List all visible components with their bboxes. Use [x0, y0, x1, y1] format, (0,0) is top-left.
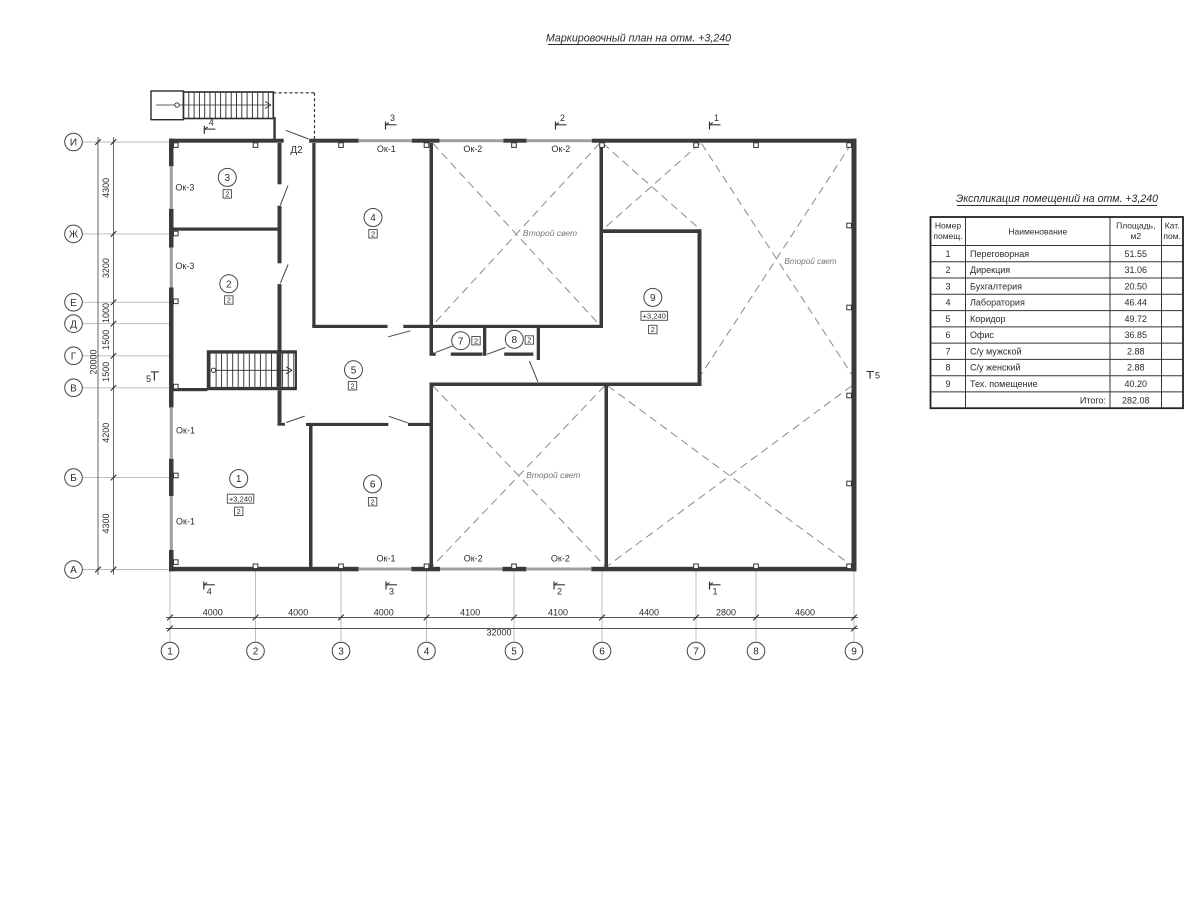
- svg-text:3200: 3200: [101, 258, 111, 278]
- svg-text:6: 6: [370, 480, 376, 491]
- svg-text:Ок-2: Ок-2: [463, 144, 482, 154]
- svg-text:2800: 2800: [716, 608, 736, 618]
- svg-text:1500: 1500: [101, 330, 111, 350]
- svg-text:2: 2: [945, 265, 950, 275]
- svg-text:8: 8: [753, 647, 759, 658]
- svg-text:Бухгалтерия: Бухгалтерия: [970, 281, 1022, 291]
- svg-text:2.88: 2.88: [1127, 347, 1145, 357]
- svg-text:20.50: 20.50: [1125, 281, 1148, 291]
- svg-text:Второй свет: Второй свет: [523, 228, 577, 238]
- svg-text:2: 2: [226, 279, 232, 290]
- svg-text:4100: 4100: [548, 608, 568, 618]
- svg-text:Б: Б: [70, 473, 77, 484]
- svg-text:Второй свет: Второй свет: [526, 470, 580, 480]
- svg-text:+3,240: +3,240: [642, 312, 665, 321]
- svg-text:1500: 1500: [101, 362, 111, 382]
- svg-text:5: 5: [351, 365, 357, 376]
- svg-text:2: 2: [651, 325, 655, 334]
- svg-text:1: 1: [714, 113, 719, 123]
- svg-text:7: 7: [458, 336, 464, 347]
- svg-text:6: 6: [945, 330, 950, 340]
- svg-text:Ок-2: Ок-2: [551, 553, 570, 563]
- svg-text:2: 2: [350, 382, 354, 391]
- svg-text:помещ.: помещ.: [933, 231, 962, 241]
- svg-text:А: А: [70, 565, 77, 576]
- svg-text:2.88: 2.88: [1127, 363, 1145, 373]
- svg-text:Офис: Офис: [970, 330, 994, 340]
- svg-text:9: 9: [851, 647, 857, 658]
- svg-text:5: 5: [511, 647, 517, 658]
- svg-text:Е: Е: [70, 298, 77, 309]
- svg-text:Переговорная: Переговорная: [970, 249, 1029, 259]
- svg-text:3: 3: [390, 113, 395, 123]
- svg-text:Ок-2: Ок-2: [551, 144, 570, 154]
- svg-text:Кат.: Кат.: [1165, 221, 1180, 231]
- svg-text:9: 9: [650, 293, 656, 304]
- svg-text:Площадь,: Площадь,: [1116, 221, 1155, 231]
- svg-text:Д: Д: [70, 319, 77, 330]
- svg-text:Номер: Номер: [935, 221, 961, 231]
- svg-text:4300: 4300: [101, 513, 111, 533]
- svg-text:4200: 4200: [101, 423, 111, 443]
- svg-text:282.08: 282.08: [1122, 395, 1150, 405]
- svg-text:4400: 4400: [639, 608, 659, 618]
- svg-text:2: 2: [474, 336, 478, 345]
- svg-text:Ок-3: Ок-3: [175, 183, 194, 193]
- svg-text:8: 8: [945, 363, 950, 373]
- svg-text:Ок-1: Ок-1: [377, 144, 396, 154]
- svg-text:В: В: [70, 383, 77, 394]
- svg-text:36.85: 36.85: [1125, 330, 1148, 340]
- svg-text:3: 3: [225, 173, 231, 184]
- svg-text:Итого:: Итого:: [1080, 395, 1106, 405]
- svg-text:4: 4: [945, 298, 950, 308]
- svg-text:Ок-2: Ок-2: [464, 553, 483, 563]
- svg-text:7: 7: [693, 647, 699, 658]
- svg-text:Маркировочный план на отм. +3,: Маркировочный план на отм. +3,240: [546, 33, 731, 45]
- svg-text:Ок-3: Ок-3: [175, 261, 194, 271]
- svg-text:2: 2: [227, 296, 231, 305]
- svg-text:Д2: Д2: [290, 145, 303, 156]
- svg-text:Тех. помещение: Тех. помещение: [970, 379, 1038, 389]
- svg-text:С/у мужской: С/у мужской: [970, 347, 1021, 357]
- svg-text:7: 7: [945, 347, 950, 357]
- svg-text:3: 3: [338, 647, 344, 658]
- svg-text:1000: 1000: [101, 303, 111, 323]
- svg-text:м2: м2: [1131, 231, 1142, 241]
- svg-text:5: 5: [146, 374, 151, 384]
- svg-text:8: 8: [512, 335, 518, 346]
- svg-text:Ж: Ж: [69, 230, 79, 241]
- svg-text:2: 2: [557, 586, 562, 596]
- svg-text:1: 1: [236, 474, 242, 485]
- svg-text:2: 2: [225, 190, 229, 199]
- svg-text:49.72: 49.72: [1125, 314, 1148, 324]
- svg-text:4100: 4100: [460, 608, 480, 618]
- svg-text:2: 2: [237, 507, 241, 516]
- svg-text:Ок-1: Ок-1: [176, 517, 195, 527]
- svg-text:5: 5: [945, 314, 950, 324]
- svg-text:4000: 4000: [203, 608, 223, 618]
- svg-text:Г: Г: [71, 351, 77, 362]
- svg-text:2: 2: [253, 647, 259, 658]
- svg-text:Лаборатория: Лаборатория: [970, 298, 1025, 308]
- svg-text:4000: 4000: [374, 608, 394, 618]
- svg-text:С/у женский: С/у женский: [970, 363, 1021, 373]
- svg-text:51.55: 51.55: [1125, 249, 1148, 259]
- svg-text:пом.: пом.: [1163, 231, 1181, 241]
- svg-text:3: 3: [945, 281, 950, 291]
- svg-text:Ок-1: Ок-1: [377, 553, 396, 563]
- svg-text:4300: 4300: [101, 178, 111, 198]
- svg-text:5: 5: [875, 371, 880, 381]
- svg-text:40.20: 40.20: [1125, 379, 1148, 389]
- svg-text:6: 6: [599, 647, 605, 658]
- svg-text:И: И: [70, 138, 77, 149]
- svg-text:Наименование: Наименование: [1008, 227, 1067, 237]
- svg-text:2: 2: [371, 230, 375, 239]
- svg-text:2: 2: [527, 336, 531, 345]
- svg-text:Экспликация помещений на отм.: Экспликация помещений на отм. +3,240: [956, 193, 1158, 205]
- svg-text:9: 9: [945, 379, 950, 389]
- svg-text:4: 4: [370, 213, 376, 224]
- svg-text:Коридор: Коридор: [970, 314, 1006, 324]
- svg-text:46.44: 46.44: [1125, 298, 1148, 308]
- svg-text:3: 3: [389, 586, 394, 596]
- svg-text:20000: 20000: [89, 349, 99, 374]
- svg-text:1: 1: [945, 249, 950, 259]
- svg-text:4: 4: [207, 586, 212, 596]
- svg-text:31.06: 31.06: [1125, 265, 1148, 275]
- svg-text:2: 2: [371, 497, 375, 506]
- svg-text:+3,240: +3,240: [229, 494, 252, 503]
- svg-text:Второй свет: Второй свет: [784, 257, 836, 266]
- svg-text:2: 2: [560, 113, 565, 123]
- svg-text:4600: 4600: [795, 608, 815, 618]
- svg-text:4: 4: [424, 647, 430, 658]
- svg-text:1: 1: [167, 647, 173, 658]
- svg-text:32000: 32000: [486, 628, 511, 638]
- svg-text:Дирекция: Дирекция: [970, 265, 1010, 275]
- svg-text:1: 1: [712, 586, 717, 596]
- svg-text:Ок-1: Ок-1: [176, 426, 195, 436]
- svg-text:4000: 4000: [288, 608, 308, 618]
